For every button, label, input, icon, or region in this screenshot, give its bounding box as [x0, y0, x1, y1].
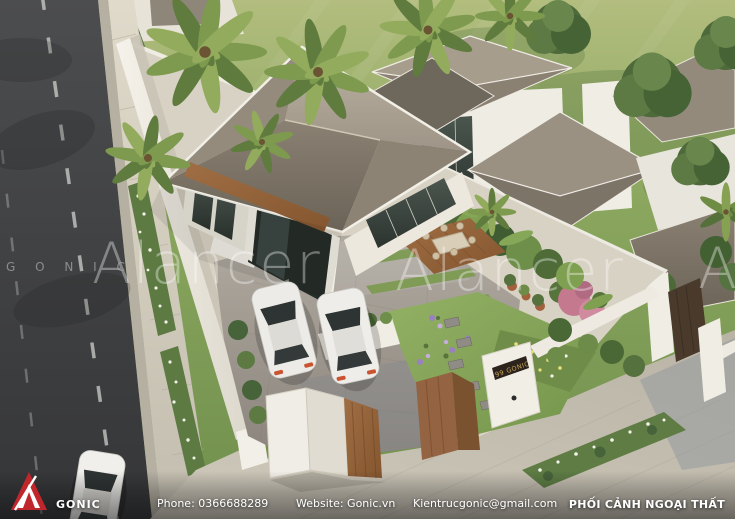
- gonic-logo: GONIC: [10, 470, 120, 516]
- footer-phone: Phone: 0366688289: [157, 497, 268, 510]
- palm-tree: [468, 188, 517, 237]
- gate-leaf-wood: [344, 398, 382, 478]
- brand-name: GONIC: [56, 498, 101, 511]
- gate-leaf-white: [266, 388, 310, 478]
- gate-leaf-white: [306, 388, 348, 476]
- scene-canvas: 99 GONIC: [0, 0, 735, 519]
- footer-email: Kientrucgonic@gmail.com: [413, 497, 557, 510]
- footer-website: Website: Gonic.vn: [296, 497, 395, 510]
- gate-leaf-wood: [416, 372, 458, 460]
- footer-caption: PHỐI CẢNH NGOẠI THẤT: [569, 498, 725, 511]
- architectural-render: 99 GONIC: [0, 0, 735, 519]
- wall-lamp: [512, 396, 517, 401]
- footer-bar: GONIC Phone: 0366688289 Website: Gonic.v…: [0, 471, 735, 519]
- gonic-logo-icon: [10, 470, 50, 512]
